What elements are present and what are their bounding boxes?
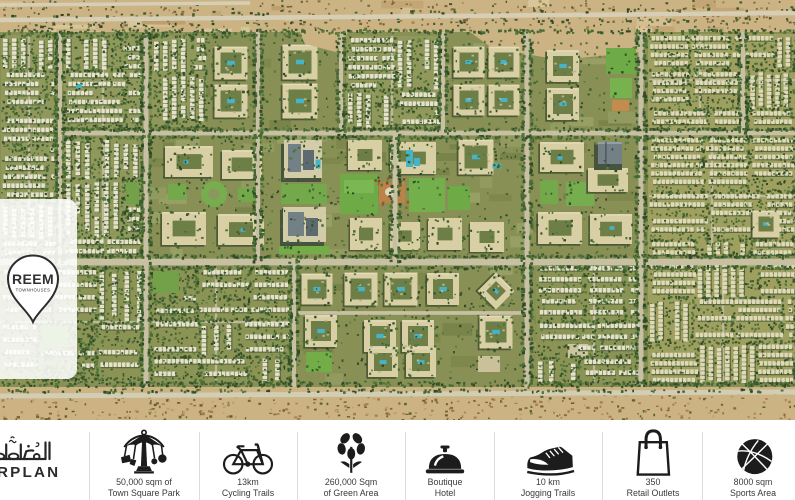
svg-text:TOWNHOUSES: TOWNHOUSES — [16, 288, 51, 293]
svg-text:REEM: REEM — [12, 271, 54, 287]
